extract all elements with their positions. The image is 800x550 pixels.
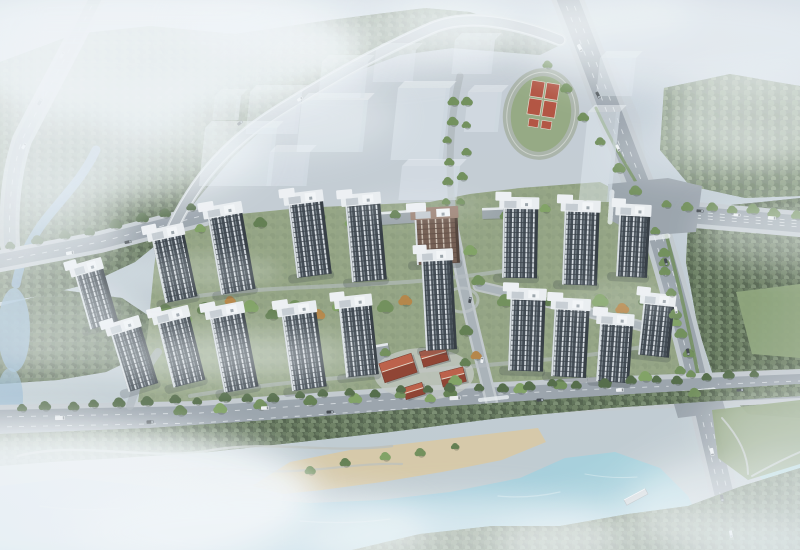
aerial-render-viewport: [0, 0, 800, 550]
aerial-rendering: [0, 0, 800, 550]
scene-root: [0, 0, 800, 550]
color-grade: [0, 0, 800, 550]
